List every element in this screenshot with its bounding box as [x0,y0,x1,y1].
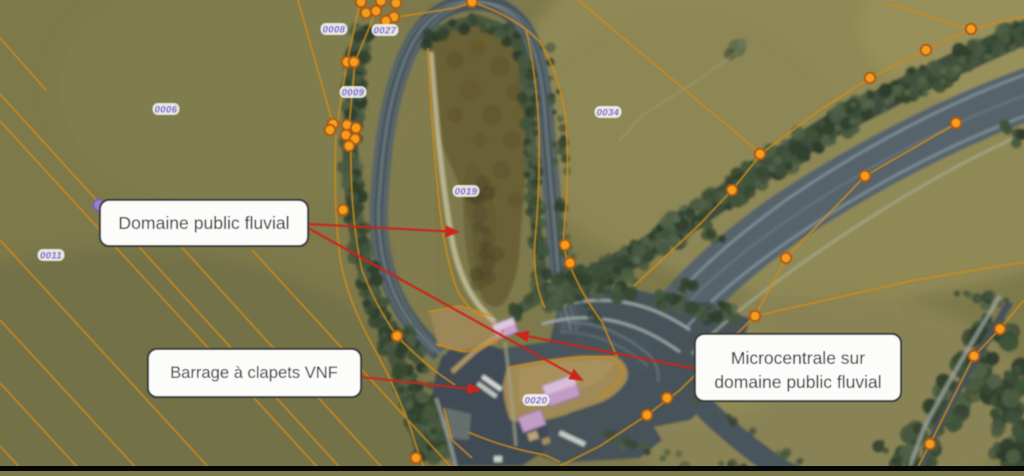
svg-text:0011: 0011 [40,251,62,262]
svg-text:0019: 0019 [455,187,478,198]
svg-text:0034: 0034 [597,108,620,119]
svg-text:Barrage à clapets VNF: Barrage à clapets VNF [170,363,338,382]
svg-text:0020: 0020 [525,396,548,407]
svg-text:0009: 0009 [342,88,365,99]
svg-text:0027: 0027 [374,26,397,37]
svg-text:Microcentrale sur: Microcentrale sur [731,348,865,368]
svg-text:0006: 0006 [155,105,178,116]
svg-text:domaine public fluvial: domaine public fluvial [714,372,881,392]
svg-text:0008: 0008 [323,25,346,36]
svg-text:Domaine public fluvial: Domaine public fluvial [118,213,289,233]
